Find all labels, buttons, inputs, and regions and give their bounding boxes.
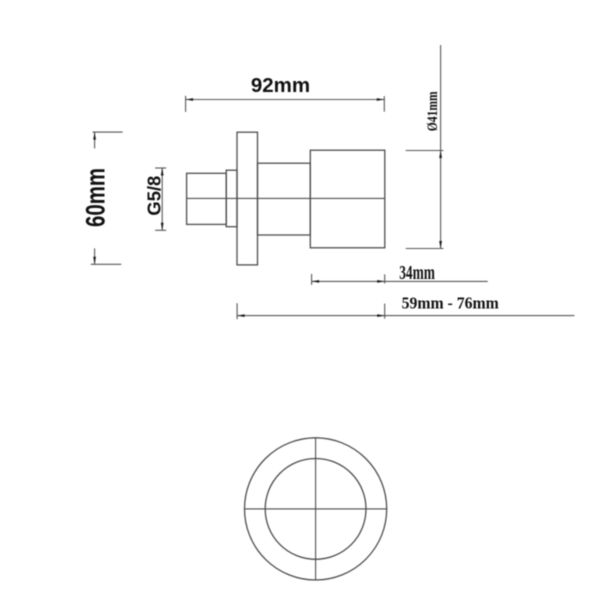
svg-text:Ø41mm: Ø41mm <box>425 91 441 131</box>
svg-text:92mm: 92mm <box>251 74 310 97</box>
svg-text:60mm: 60mm <box>81 168 111 227</box>
svg-text:59mm - 76mm: 59mm - 76mm <box>402 294 500 313</box>
svg-text:G5/8: G5/8 <box>144 176 164 216</box>
svg-text:34mm: 34mm <box>399 262 435 284</box>
